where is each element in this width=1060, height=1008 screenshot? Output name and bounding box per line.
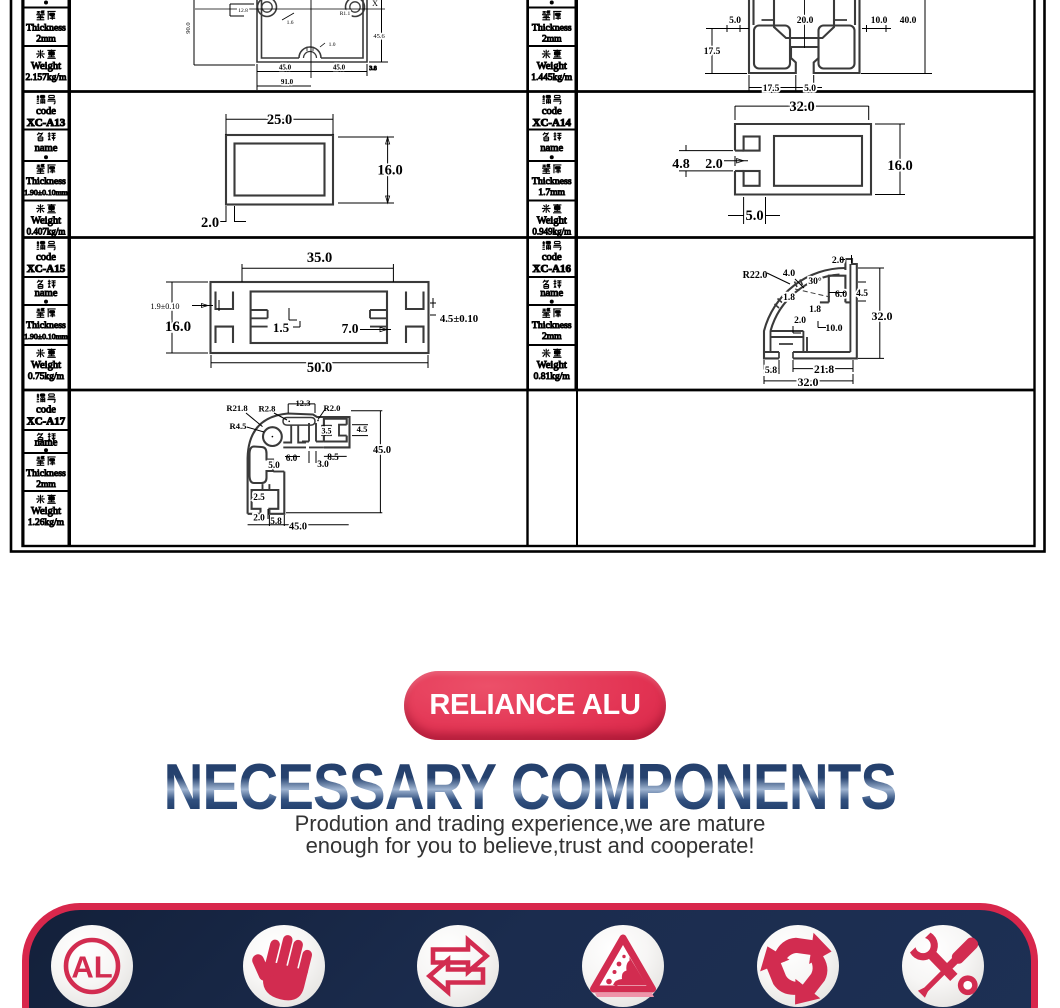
svg-text:30°: 30°: [808, 276, 822, 287]
svg-text:4.5±0.10: 4.5±0.10: [440, 313, 478, 325]
svg-text:5.8: 5.8: [765, 365, 777, 376]
svg-text:2mm: 2mm: [542, 332, 562, 342]
svg-text:50.0: 50.0: [307, 360, 332, 376]
svg-text:0.81kg/m: 0.81kg/m: [534, 372, 571, 382]
svg-text:1.0: 1.0: [329, 42, 336, 48]
svg-text:1.7mm: 1.7mm: [538, 188, 565, 198]
svg-text:2mm: 2mm: [36, 35, 56, 45]
svg-text:XC-A16: XC-A16: [533, 263, 572, 275]
svg-text:Thickness: Thickness: [26, 176, 66, 187]
svg-text:XC-A14: XC-A14: [533, 117, 572, 129]
svg-text:8.5: 8.5: [327, 453, 339, 463]
svg-text:R21.8: R21.8: [226, 403, 248, 413]
svg-text:1.5: 1.5: [273, 320, 290, 335]
svg-text:1.90±0.10mm: 1.90±0.10mm: [24, 188, 68, 197]
svg-text:1.8: 1.8: [809, 305, 821, 315]
svg-text:Weight: Weight: [31, 506, 61, 517]
svg-text:X: X: [372, 0, 378, 8]
svg-text:5.0: 5.0: [745, 208, 763, 224]
svg-text:Thickness: Thickness: [532, 176, 572, 187]
svg-text:R2.0: R2.0: [324, 403, 341, 413]
svg-text:R4.5: R4.5: [230, 421, 247, 431]
svg-text:Weight: Weight: [31, 360, 61, 371]
svg-text:2.0: 2.0: [253, 514, 265, 524]
svg-text:5.0: 5.0: [804, 84, 816, 94]
svg-text:16.0: 16.0: [887, 158, 912, 174]
svg-text:45.0: 45.0: [279, 64, 292, 72]
svg-text:XC-A13: XC-A13: [27, 117, 66, 129]
svg-text:2.0: 2.0: [201, 215, 219, 231]
svg-text:10.0: 10.0: [871, 16, 888, 26]
svg-text:35.0: 35.0: [307, 250, 332, 266]
svg-text:Thickness: Thickness: [26, 23, 66, 34]
svg-text:Thickness: Thickness: [532, 320, 572, 331]
svg-text:10.0: 10.0: [825, 323, 842, 334]
svg-text:17.5: 17.5: [763, 84, 780, 94]
svg-text:Thickness: Thickness: [532, 23, 572, 34]
svg-text:Weight: Weight: [537, 61, 567, 72]
svg-text:3.5: 3.5: [322, 427, 332, 436]
svg-text:0.75kg/m: 0.75kg/m: [28, 372, 65, 382]
svg-text:Thickness: Thickness: [26, 320, 66, 331]
svg-text:name: name: [540, 143, 563, 154]
svg-text:5.0: 5.0: [268, 461, 280, 471]
svg-text:20.0: 20.0: [797, 16, 814, 26]
svg-text:2.0: 2.0: [794, 316, 806, 326]
svg-text:91.0: 91.0: [281, 78, 294, 86]
svg-text:code: code: [36, 252, 56, 263]
svg-text:45.0: 45.0: [373, 445, 391, 456]
svg-text:6.0: 6.0: [286, 454, 298, 464]
svg-text:12.3: 12.3: [295, 398, 310, 408]
svg-text:R22.0: R22.0: [743, 270, 768, 281]
svg-text:5.8: 5.8: [270, 517, 282, 527]
svg-text:XC-A17: XC-A17: [27, 416, 66, 428]
svg-text:code: code: [36, 106, 56, 117]
svg-text:16.0: 16.0: [377, 163, 402, 179]
svg-text:Weight: Weight: [31, 61, 61, 72]
svg-text:code: code: [36, 405, 56, 416]
svg-text:name: name: [540, 288, 563, 299]
svg-text:32.0: 32.0: [872, 309, 893, 323]
svg-text:1.6: 1.6: [287, 20, 294, 26]
svg-text:4.0: 4.0: [783, 268, 795, 279]
svg-text:name: name: [35, 288, 58, 299]
svg-text:90.0: 90.0: [185, 22, 192, 33]
svg-text:4.8: 4.8: [672, 157, 690, 172]
svg-text:1.9±0.10: 1.9±0.10: [150, 302, 179, 311]
svg-text:45.0: 45.0: [289, 522, 307, 533]
svg-text:name: name: [35, 438, 58, 449]
svg-text:1.26kg/m: 1.26kg/m: [28, 518, 65, 528]
svg-text:17.5: 17.5: [704, 47, 721, 57]
svg-text:code: code: [542, 252, 562, 263]
svg-text:40.0: 40.0: [900, 16, 917, 26]
svg-text:6.0: 6.0: [835, 289, 847, 300]
svg-text:0.949kg/m: 0.949kg/m: [532, 227, 571, 237]
svg-text:2.0: 2.0: [832, 255, 844, 266]
svg-text:3.8: 3.8: [369, 66, 377, 72]
svg-text:Weight: Weight: [537, 216, 567, 227]
svg-text:Thickness: Thickness: [26, 468, 66, 479]
svg-text:name: name: [35, 143, 58, 154]
svg-text:Weight: Weight: [31, 216, 61, 227]
svg-text:2mm: 2mm: [36, 480, 56, 490]
svg-text:XC-A15: XC-A15: [27, 263, 66, 275]
svg-text:45.6: 45.6: [373, 33, 385, 40]
svg-text:R1.1: R1.1: [340, 11, 351, 17]
svg-text:12.8: 12.8: [238, 8, 248, 14]
svg-text:1.8: 1.8: [783, 293, 795, 303]
svg-text:7.0: 7.0: [342, 321, 359, 336]
svg-text:Weight: Weight: [537, 360, 567, 371]
svg-text:5.0: 5.0: [729, 16, 741, 26]
svg-text:32.0: 32.0: [798, 375, 819, 389]
svg-text:1.445kg/m: 1.445kg/m: [531, 73, 573, 83]
svg-text:2.157kg/m: 2.157kg/m: [26, 73, 68, 83]
svg-text:AL: AL: [71, 950, 112, 985]
svg-text:2.5: 2.5: [253, 493, 265, 503]
svg-text:2.0: 2.0: [705, 157, 723, 172]
svg-text:25.0: 25.0: [267, 112, 292, 128]
svg-text:code: code: [542, 106, 562, 117]
svg-text:32.0: 32.0: [789, 99, 814, 115]
svg-text:1.90±0.10mm: 1.90±0.10mm: [24, 332, 68, 341]
svg-text:16.0: 16.0: [165, 319, 191, 335]
svg-text:4.5: 4.5: [856, 289, 868, 299]
svg-text:45.0: 45.0: [333, 64, 346, 72]
svg-text:0.407kg/m: 0.407kg/m: [27, 227, 66, 237]
svg-text:2mm: 2mm: [542, 35, 562, 45]
svg-text:4.5: 4.5: [357, 424, 368, 434]
svg-text:R2.8: R2.8: [259, 404, 277, 414]
svg-text:3.0: 3.0: [317, 460, 329, 470]
